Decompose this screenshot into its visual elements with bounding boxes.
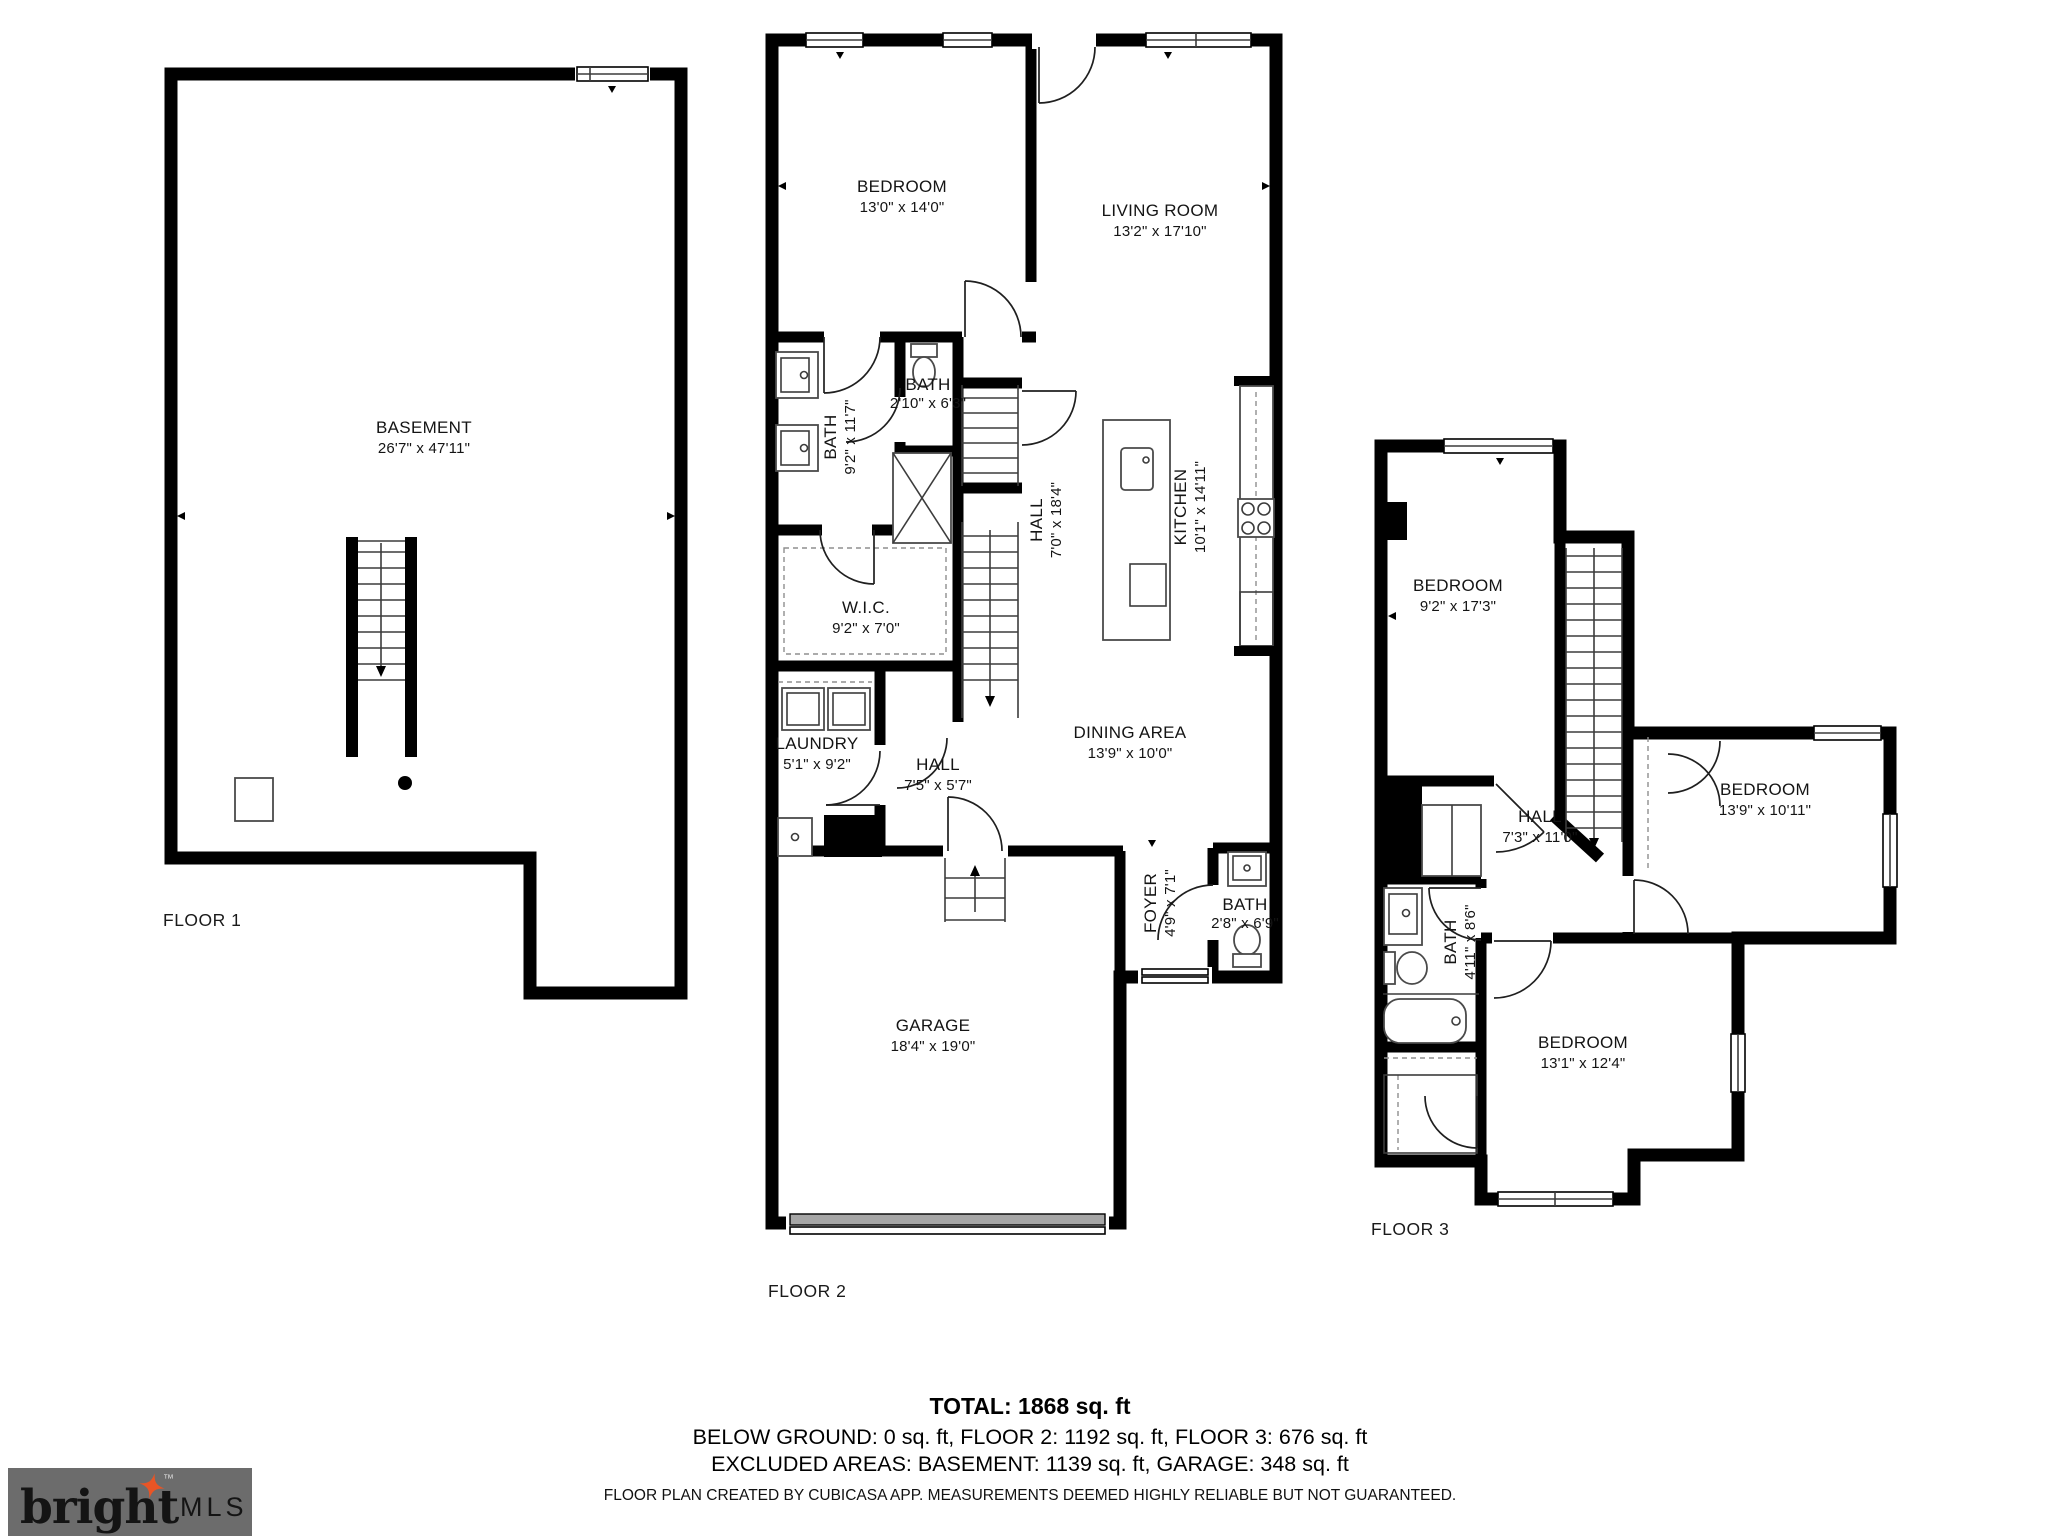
tick-icon <box>608 86 616 93</box>
room-dims: 7'5" x 5'7" <box>904 777 972 794</box>
room-label-laundry: LAUNDRY 5'1" x 9'2" <box>775 734 858 773</box>
washer-dryer-icon <box>778 682 872 730</box>
floor-plan-page: BASEMENT 26'7" x 47'11" FLOOR 1 <box>0 0 2048 1536</box>
floor2-caption: FLOOR 2 <box>768 1281 846 1301</box>
room-dims: 9'2" x 11'7" <box>842 399 859 474</box>
tick-icon <box>1262 182 1270 190</box>
floor1-outer-walls <box>171 74 681 993</box>
floor-2-plan: BEDROOM 13'0" x 14'0" LIVING ROOM 13'2" … <box>768 32 1279 1301</box>
room-name: BEDROOM <box>1720 780 1810 799</box>
room-name: KITCHEN <box>1171 469 1190 546</box>
room-label-hall-lower: HALL 7'5" x 5'7" <box>904 755 972 794</box>
window <box>1146 33 1251 47</box>
stove-icon <box>1238 499 1274 537</box>
closet-dashed-outline <box>1384 1058 1477 1153</box>
room-label-bath: BATH 4'11" x 8'6" <box>1441 904 1479 979</box>
excluded-areas-text: EXCLUDED AREAS: BASEMENT: 1139 sq. ft, G… <box>711 1452 1349 1476</box>
room-dims: 13'0" x 14'0" <box>860 199 945 216</box>
room-label-basement: BASEMENT 26'7" x 47'11" <box>376 418 472 457</box>
tick-icon <box>778 182 786 190</box>
room-name: W.I.C. <box>842 598 890 617</box>
room-dims: 9'2" x 7'0" <box>832 620 900 637</box>
tick-icon <box>1148 840 1156 847</box>
brand-logo: bright ™ MLS <box>8 1468 252 1536</box>
kitchen-counter <box>1234 376 1276 656</box>
room-name: BEDROOM <box>1413 576 1503 595</box>
sink-icon <box>776 352 818 398</box>
tick-icon <box>667 512 675 520</box>
floor3-caption: FLOOR 3 <box>1371 1219 1449 1239</box>
room-name: BEDROOM <box>857 177 947 196</box>
room-name: HALL <box>1518 807 1562 826</box>
room-dims: 26'7" x 47'11" <box>378 440 470 457</box>
room-dims: 13'1" x 12'4" <box>1541 1055 1626 1072</box>
room-dims: 2'10" x 6'3" <box>890 395 966 412</box>
room-dims: 7'3" x 11'0" <box>1502 829 1577 846</box>
room-name: BATH <box>1222 895 1267 914</box>
room-label-bedroom: BEDROOM 13'0" x 14'0" <box>857 177 947 216</box>
room-label-wic: W.I.C. 9'2" x 7'0" <box>832 598 900 637</box>
utility-box <box>235 778 273 821</box>
room-name: HALL <box>916 755 960 774</box>
logo-trademark: ™ <box>163 1473 174 1485</box>
room-label-living-room: LIVING ROOM 13'2" x 17'10" <box>1102 201 1219 240</box>
closet <box>1422 805 1481 876</box>
room-dims: 2'8" x 6'9" <box>1211 915 1279 932</box>
garage-door <box>790 1214 1105 1234</box>
tick-icon <box>1496 458 1504 465</box>
room-name: HALL <box>1027 498 1046 542</box>
bathtub-icon <box>1384 999 1466 1043</box>
room-dims: 4'9" x 7'1" <box>1162 869 1179 937</box>
room-name: DINING AREA <box>1074 723 1187 742</box>
bathroom-fixtures <box>776 344 951 543</box>
room-name: BATH <box>821 414 840 459</box>
window <box>943 33 992 47</box>
logo-mls-text: MLS <box>180 1492 248 1522</box>
disclaimer-text: FLOOR PLAN CREATED BY CUBICASA APP. MEAS… <box>604 1487 1456 1504</box>
room-name: BEDROOM <box>1538 1033 1628 1052</box>
room-dims: 7'0" x 18'4" <box>1048 482 1065 558</box>
stairs-icon <box>962 385 1018 718</box>
floor1-caption: FLOOR 1 <box>163 910 241 930</box>
floor-breakdown-text: BELOW GROUND: 0 sq. ft, FLOOR 2: 1192 sq… <box>693 1425 1368 1449</box>
floor-drain-dot <box>398 776 412 790</box>
room-label-bedroom-3: BEDROOM 13'1" x 12'4" <box>1538 1033 1628 1072</box>
kitchen-island <box>1103 420 1170 640</box>
sink-icon <box>776 425 818 471</box>
window <box>1814 726 1881 740</box>
window <box>806 33 863 47</box>
window <box>1731 1034 1745 1092</box>
room-name: GARAGE <box>896 1016 971 1035</box>
toilet-icon <box>1384 952 1427 984</box>
tick-icon <box>1164 52 1172 59</box>
room-label-kitchen: KITCHEN 10'1" x 14'11" <box>1171 461 1209 553</box>
room-dims: 5'1" x 9'2" <box>783 756 851 773</box>
room-name: LAUNDRY <box>775 734 858 753</box>
room-label-bath-1: BATH 9'2" x 11'7" <box>821 399 859 474</box>
room-dims: 13'2" x 17'10" <box>1113 223 1206 240</box>
room-label-dining-area: DINING AREA 13'9" x 10'0" <box>1074 723 1187 762</box>
floor-plan-drawing: BASEMENT 26'7" x 47'11" FLOOR 1 <box>0 0 2048 1536</box>
room-name: FOYER <box>1141 873 1160 933</box>
stairs-icon <box>352 537 411 757</box>
room-dims: 13'9" x 10'11" <box>1719 802 1811 819</box>
floor-3-plan: BEDROOM 9'2" x 17'3" HALL 7'3" x 11'0" B… <box>1371 439 1897 1239</box>
window <box>1883 814 1897 887</box>
total-area-text: TOTAL: 1868 sq. ft <box>929 1393 1130 1419</box>
room-label-hall-upper: HALL 7'0" x 18'4" <box>1027 482 1065 558</box>
room-dims: 9'2" x 17'3" <box>1420 598 1496 615</box>
room-label-bath-3: BATH 2'8" x 6'9" <box>1211 895 1279 932</box>
room-name: BATH <box>1441 919 1460 964</box>
shower-icon <box>893 453 951 543</box>
room-label-bedroom-2: BEDROOM 13'9" x 10'11" <box>1719 780 1811 819</box>
window <box>575 64 650 84</box>
area-summary: TOTAL: 1868 sq. ft BELOW GROUND: 0 sq. f… <box>604 1393 1456 1504</box>
room-name: BASEMENT <box>376 418 472 437</box>
sink-icon <box>778 818 812 856</box>
room-name: BATH <box>905 375 950 394</box>
room-dims: 18'4" x 19'0" <box>891 1038 976 1055</box>
tick-icon <box>177 512 185 520</box>
floor-1-plan: BASEMENT 26'7" x 47'11" FLOOR 1 <box>163 64 681 993</box>
window <box>1498 1192 1613 1206</box>
room-label-bedroom-1: BEDROOM 9'2" x 17'3" <box>1413 576 1503 615</box>
room-dims: 4'11" x 8'6" <box>1462 904 1479 979</box>
room-dims: 13'9" x 10'0" <box>1088 745 1173 762</box>
tick-icon <box>1388 612 1396 620</box>
garage-steps-icon <box>945 858 1005 922</box>
room-name: LIVING ROOM <box>1102 201 1219 220</box>
window <box>1444 439 1553 453</box>
stairs-icon <box>1566 548 1622 849</box>
room-label-garage: GARAGE 18'4" x 19'0" <box>891 1016 976 1055</box>
tick-icon <box>836 52 844 59</box>
room-dims: 10'1" x 14'11" <box>1192 461 1209 553</box>
